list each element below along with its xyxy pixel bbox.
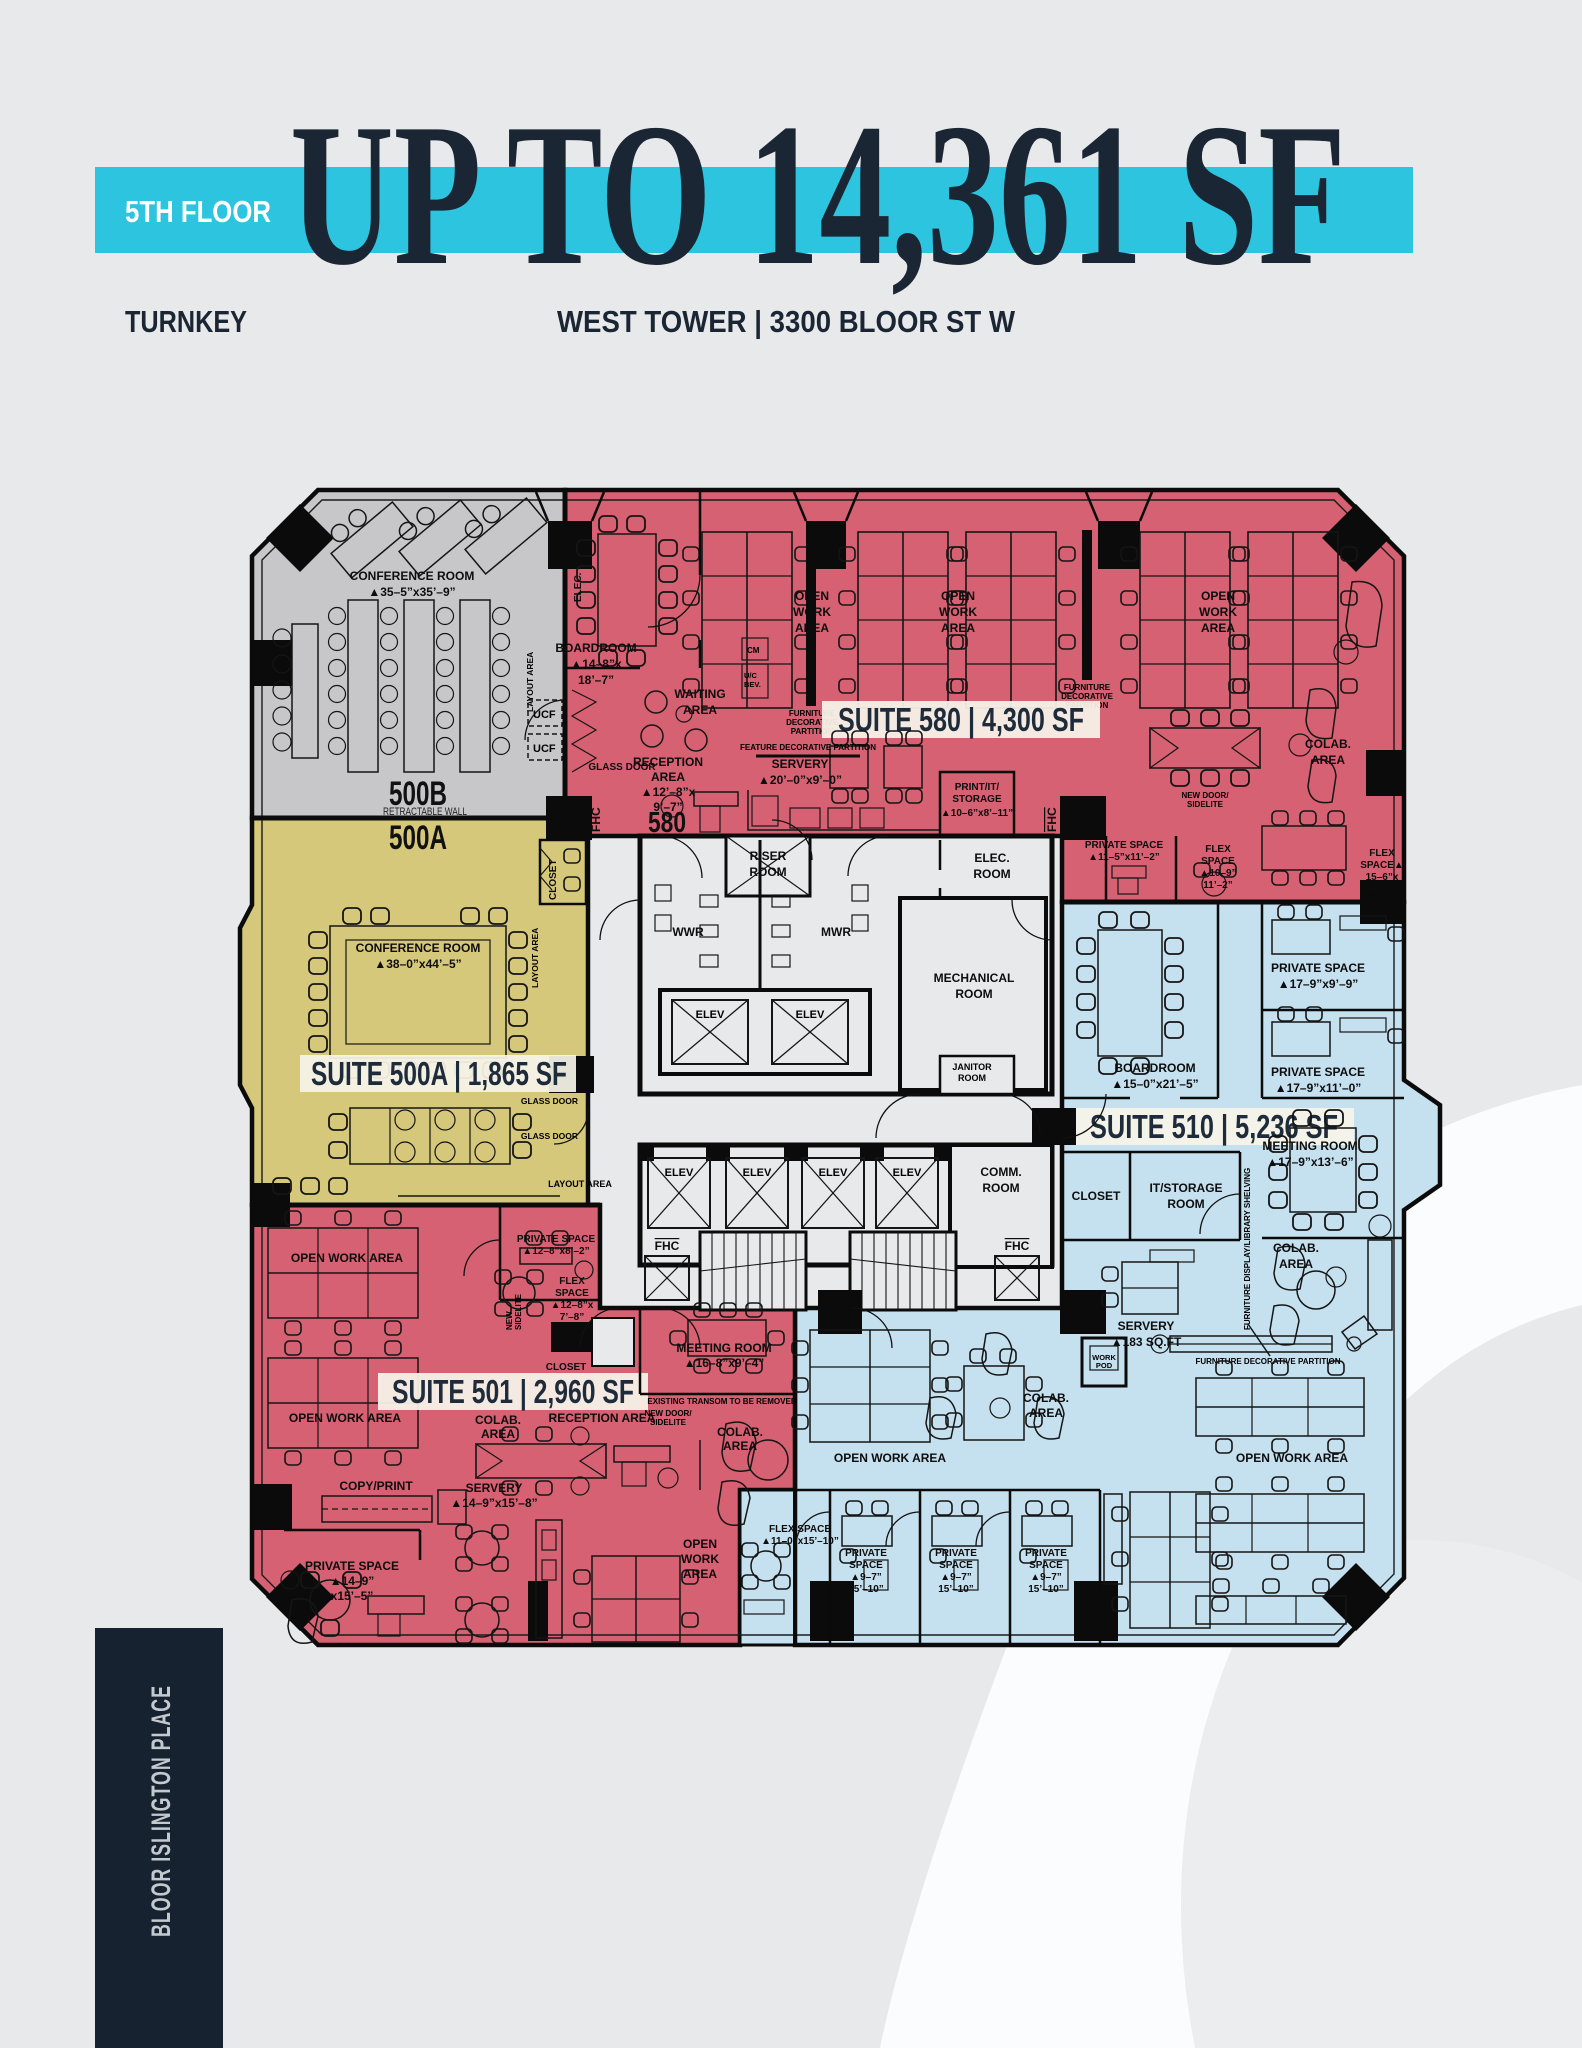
svg-text:STORAGE: STORAGE — [952, 794, 1002, 805]
svg-text:18’–7”: 18’–7” — [578, 673, 614, 687]
svg-text:SIDELITE: SIDELITE — [650, 1418, 687, 1427]
svg-text:PRIVATE: PRIVATE — [845, 1548, 887, 1559]
svg-text:BEV.: BEV. — [744, 680, 761, 689]
svg-text:MECHANICAL: MECHANICAL — [934, 971, 1015, 985]
svg-text:GLASS DOOR: GLASS DOOR — [588, 762, 656, 773]
svg-text:OPEN: OPEN — [795, 589, 829, 603]
svg-text:x15’–5”: x15’–5” — [331, 1589, 374, 1603]
svg-text:NEW DOOR/: NEW DOOR/ — [644, 1409, 692, 1418]
svg-text:OPEN: OPEN — [941, 589, 975, 603]
svg-text:IT/STORAGE: IT/STORAGE — [1149, 1181, 1222, 1195]
svg-text:500A: 500A — [389, 819, 447, 857]
svg-text:SPACE: SPACE — [939, 1560, 973, 1571]
svg-text:GLASS DOOR: GLASS DOOR — [521, 1096, 578, 1106]
svg-text:ELEV: ELEV — [665, 1167, 694, 1179]
svg-text:▲17–9”x9’–9”: ▲17–9”x9’–9” — [1278, 977, 1359, 991]
svg-text:WORK: WORK — [939, 605, 977, 619]
svg-text:SUITE 500A | 1,865 SF: SUITE 500A | 1,865 SF — [311, 1055, 567, 1092]
svg-text:OPEN WORK AREA: OPEN WORK AREA — [291, 1251, 404, 1265]
svg-text:▲14–9”x15’–8”: ▲14–9”x15’–8” — [450, 1496, 537, 1510]
svg-text:DECORATIVE: DECORATIVE — [1061, 692, 1114, 701]
svg-text:▲12–8”x8’–2”: ▲12–8”x8’–2” — [522, 1246, 589, 1257]
svg-text:PRIVATE: PRIVATE — [1025, 1548, 1067, 1559]
svg-text:SERVERY: SERVERY — [1118, 1319, 1175, 1333]
svg-text:▲12–8”x: ▲12–8”x — [551, 1300, 594, 1311]
svg-text:ELEV: ELEV — [893, 1167, 922, 1179]
svg-text:ELEC.: ELEC. — [573, 572, 584, 602]
svg-text:COPY/PRINT: COPY/PRINT — [339, 1479, 413, 1493]
svg-text:FLEX: FLEX — [1369, 848, 1395, 859]
svg-text:11’–0”: 11’–0” — [1367, 884, 1396, 895]
svg-text:SPACE: SPACE — [1029, 1560, 1063, 1571]
svg-text:▲17–9”x11’–0”: ▲17–9”x11’–0” — [1275, 1081, 1362, 1095]
svg-text:NEW DOOR/: NEW DOOR/ — [1181, 791, 1229, 800]
svg-text:PRIVATE SPACE: PRIVATE SPACE — [1271, 1065, 1365, 1079]
svg-text:SPACE: SPACE — [555, 1288, 589, 1299]
svg-text:COMM.: COMM. — [980, 1165, 1021, 1179]
svg-text:RETRACTABLE WALL: RETRACTABLE WALL — [383, 806, 467, 818]
svg-text:ROOM: ROOM — [1167, 1197, 1204, 1211]
svg-text:▲9–7”: ▲9–7” — [850, 1572, 882, 1583]
svg-text:CLOSET: CLOSET — [1072, 1189, 1121, 1203]
svg-text:AREA: AREA — [795, 621, 829, 635]
svg-text:PRIVATE SPACE: PRIVATE SPACE — [305, 1559, 399, 1573]
svg-text:▲35–5”x35’–9”: ▲35–5”x35’–9” — [368, 585, 455, 599]
svg-text:RECEPTION AREA: RECEPTION AREA — [549, 1411, 656, 1425]
svg-text:MWR: MWR — [821, 925, 851, 939]
svg-text:ROOM: ROOM — [955, 987, 992, 1001]
svg-text:COLAB.: COLAB. — [1023, 1391, 1069, 1405]
svg-text:COLAB.: COLAB. — [475, 1413, 521, 1427]
svg-text:WEST TOWER | 3300 BLOOR ST W: WEST TOWER | 3300 BLOOR ST W — [557, 304, 1016, 339]
svg-text:ROOM: ROOM — [982, 1181, 1019, 1195]
svg-text:CONFERENCE ROOM: CONFERENCE ROOM — [356, 941, 481, 955]
svg-text:▲14–9”: ▲14–9” — [330, 1574, 375, 1588]
svg-text:SUITE 580 | 4,300 SF: SUITE 580 | 4,300 SF — [838, 701, 1084, 738]
svg-text:GLASS DOOR: GLASS DOOR — [521, 1131, 578, 1141]
svg-text:▲14–8”x: ▲14–8”x — [570, 657, 622, 671]
svg-text:U/C: U/C — [744, 671, 758, 680]
svg-text:LAYOUT AREA: LAYOUT AREA — [525, 652, 535, 712]
svg-text:WORK: WORK — [1199, 605, 1237, 619]
svg-text:OPEN WORK AREA: OPEN WORK AREA — [289, 1411, 402, 1425]
svg-text:▲20’–0”x9’–0”: ▲20’–0”x9’–0” — [758, 773, 842, 787]
svg-text:CLOSET: CLOSET — [546, 1362, 587, 1373]
svg-text:WWR: WWR — [672, 925, 704, 939]
svg-text:AREA: AREA — [683, 703, 717, 717]
svg-text:MEETING ROOM: MEETING ROOM — [1262, 1139, 1357, 1153]
svg-text:ROOM: ROOM — [749, 865, 786, 879]
svg-text:ELEV: ELEV — [696, 1009, 725, 1021]
svg-text:UCF: UCF — [533, 709, 556, 721]
svg-text:SERVERY: SERVERY — [772, 757, 829, 771]
svg-text:MEETING ROOM: MEETING ROOM — [676, 1341, 771, 1355]
svg-text:FEATURE DECORATIVE PARTITION: FEATURE DECORATIVE PARTITION — [740, 743, 876, 752]
svg-text:LAYOUT AREA: LAYOUT AREA — [530, 928, 540, 988]
svg-text:AREA: AREA — [651, 770, 685, 784]
svg-text:ELEV: ELEV — [743, 1167, 772, 1179]
svg-text:PRINT/IT/: PRINT/IT/ — [955, 782, 1000, 793]
svg-text:SIDELITE: SIDELITE — [1187, 800, 1224, 809]
svg-text:AREA: AREA — [941, 621, 975, 635]
svg-text:▲10–9”: ▲10–9” — [1199, 868, 1236, 879]
svg-text:▲11–0”x15’–10”: ▲11–0”x15’–10” — [761, 1536, 839, 1547]
svg-text:NEW: NEW — [505, 1311, 514, 1330]
svg-text:15’–10”: 15’–10” — [1028, 1584, 1064, 1595]
svg-text:▲9–7”: ▲9–7” — [940, 1572, 972, 1583]
svg-text:WORK: WORK — [681, 1552, 719, 1566]
svg-text:BOARDROOM: BOARDROOM — [1114, 1061, 1195, 1075]
svg-text:SIDELITE: SIDELITE — [514, 1293, 523, 1330]
svg-text:CLOSET: CLOSET — [548, 859, 559, 900]
svg-text:JANITOR: JANITOR — [952, 1062, 992, 1072]
svg-text:7’–8”: 7’–8” — [560, 1312, 584, 1323]
svg-text:SUITE 501 | 2,960 SF: SUITE 501 | 2,960 SF — [392, 1373, 634, 1410]
svg-text:BOARDROOM: BOARDROOM — [555, 641, 636, 655]
svg-text:FHC: FHC — [1045, 807, 1059, 832]
svg-text:FURNITURE DISPLAY/LIBRARY SH: FURNITURE DISPLAY/LIBRARY SHELVING — [1243, 1168, 1252, 1330]
svg-text:PRIVATE: PRIVATE — [935, 1548, 977, 1559]
svg-text:PRIVATE SPACE: PRIVATE SPACE — [1085, 840, 1164, 851]
svg-text:SERVERY: SERVERY — [466, 1481, 523, 1495]
svg-text:5TH FLOOR: 5TH FLOOR — [125, 194, 271, 229]
svg-text:▲16–8”x9’–4”: ▲16–8”x9’–4” — [684, 1356, 765, 1370]
svg-text:TURNKEY: TURNKEY — [125, 304, 247, 339]
svg-text:11’–2”: 11’–2” — [1203, 880, 1232, 891]
svg-text:15’–10”: 15’–10” — [848, 1584, 884, 1595]
svg-text:SPACE▲: SPACE▲ — [1360, 860, 1404, 871]
svg-text:▲9–7”: ▲9–7” — [1030, 1572, 1062, 1583]
svg-text:▲11–5”x11’–2”: ▲11–5”x11’–2” — [1088, 852, 1160, 863]
svg-text:AREA: AREA — [683, 1567, 717, 1581]
svg-text:15’–10”: 15’–10” — [938, 1584, 974, 1595]
svg-text:UP TO 14,361 SF: UP TO 14,361 SF — [290, 82, 1346, 308]
svg-text:AREA: AREA — [1029, 1406, 1063, 1420]
svg-text:SPACE: SPACE — [849, 1560, 883, 1571]
svg-text:WAITING: WAITING — [674, 687, 725, 701]
svg-text:OPEN WORK AREA: OPEN WORK AREA — [834, 1451, 947, 1465]
svg-text:FLEX: FLEX — [559, 1276, 585, 1287]
svg-text:ELEV: ELEV — [819, 1167, 848, 1179]
svg-text:AREA: AREA — [1279, 1257, 1313, 1271]
svg-text:AREA: AREA — [481, 1427, 515, 1441]
svg-text:FLEX: FLEX — [1205, 844, 1231, 855]
svg-text:OPEN WORK AREA: OPEN WORK AREA — [1236, 1451, 1349, 1465]
svg-text:▲17–9”x13’–6”: ▲17–9”x13’–6” — [1266, 1155, 1353, 1169]
svg-text:RISER: RISER — [750, 849, 787, 863]
svg-text:FHC: FHC — [655, 1239, 680, 1253]
svg-text:BLOOR ISLINGTON PLACE: BLOOR ISLINGTON PLACE — [146, 1685, 176, 1937]
svg-text:AREA: AREA — [723, 1439, 757, 1453]
svg-text:CM: CM — [747, 646, 760, 655]
svg-text:POD: POD — [1096, 1361, 1113, 1370]
svg-text:OPEN: OPEN — [1201, 589, 1235, 603]
svg-text:FHC: FHC — [1005, 1239, 1030, 1253]
svg-text:COLAB.: COLAB. — [717, 1425, 763, 1439]
svg-text:▲15–0”x21’–5”: ▲15–0”x21’–5” — [1111, 1077, 1198, 1091]
svg-text:ROOM: ROOM — [958, 1073, 986, 1083]
svg-text:ROOM: ROOM — [973, 867, 1010, 881]
svg-text:ELEV: ELEV — [796, 1009, 825, 1021]
svg-text:WORK: WORK — [793, 605, 831, 619]
svg-text:EXISTING TRANSOM TO BE REM: EXISTING TRANSOM TO BE REMOVED — [647, 1397, 796, 1406]
svg-text:▲12’–8”x: ▲12’–8”x — [641, 785, 696, 799]
svg-text:▲10–6”x8’–11”: ▲10–6”x8’–11” — [941, 808, 1013, 819]
svg-text:SPACE: SPACE — [1201, 856, 1235, 867]
svg-text:580: 580 — [648, 807, 686, 839]
svg-text:COLAB.: COLAB. — [1273, 1241, 1319, 1255]
svg-text:PRIVATE SPACE: PRIVATE SPACE — [517, 1234, 596, 1245]
svg-text:▲38–0”x44’–5”: ▲38–0”x44’–5” — [374, 957, 461, 971]
svg-text:CONFERENCE ROOM: CONFERENCE ROOM — [350, 569, 475, 583]
svg-text:LAYOUT AREA: LAYOUT AREA — [548, 1179, 612, 1189]
svg-text:FURNITURE: FURNITURE — [1064, 683, 1111, 692]
svg-text:AREA: AREA — [1201, 621, 1235, 635]
svg-text:UCF: UCF — [533, 743, 556, 755]
svg-text:ELEC.: ELEC. — [974, 851, 1009, 865]
svg-text:OPEN: OPEN — [683, 1537, 717, 1551]
svg-text:15–6”x: 15–6”x — [1366, 872, 1399, 883]
svg-text:PRIVATE SPACE: PRIVATE SPACE — [1271, 961, 1365, 975]
